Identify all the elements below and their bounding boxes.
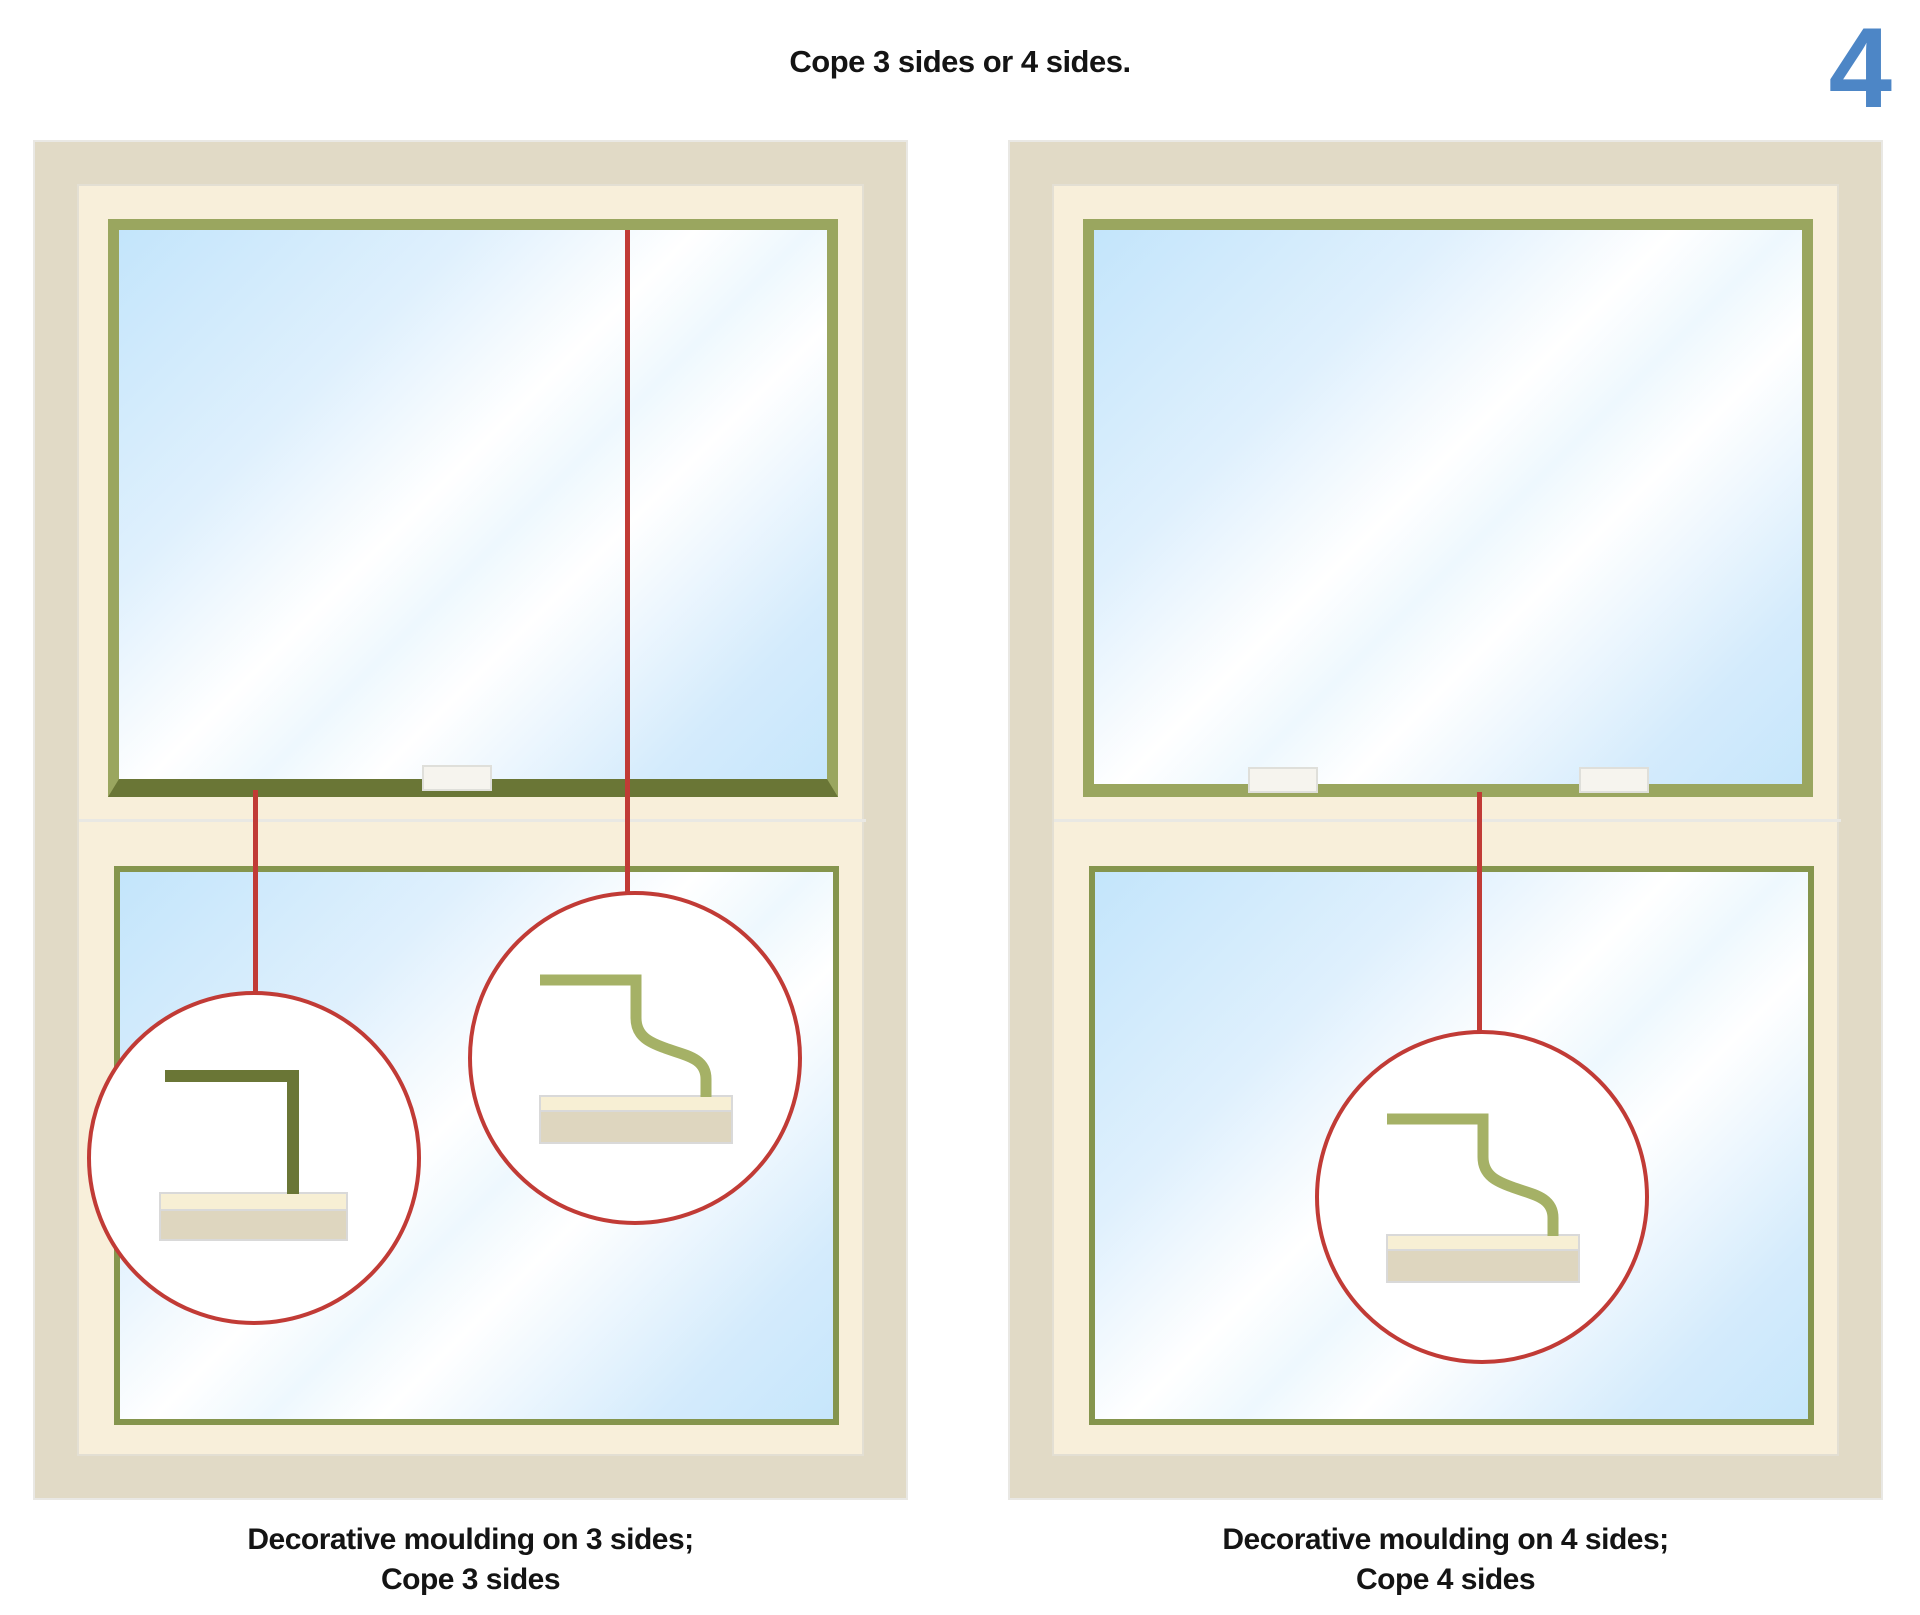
window-diagram-3-sides [33, 140, 908, 1500]
sill-top [540, 1096, 732, 1111]
frame-joint-line [79, 819, 866, 822]
square-moulding-profile-icon [87, 991, 421, 1325]
callout-leader-line [1477, 792, 1482, 1032]
frame-joint-line [1054, 819, 1841, 822]
figure-title: Cope 3 sides or 4 sides. [0, 44, 1920, 80]
ogee-moulding-line [1387, 1119, 1553, 1236]
window-diagram-4-sides [1008, 140, 1883, 1500]
callout-leader-line-top [625, 230, 630, 894]
ogee-moulding-line [540, 980, 706, 1097]
figure-canvas: Cope 3 sides or 4 sides. 4 Decorative mo [0, 0, 1920, 1615]
ogee-moulding-profile-icon [468, 891, 802, 1225]
ogee-moulding-profile-icon [1315, 1030, 1649, 1364]
caption-3-sides: Decorative moulding on 3 sides; Cope 3 s… [33, 1520, 908, 1600]
callout-circle-square-moulding [87, 991, 421, 1325]
caption-line-1: Decorative moulding on 4 sides; [1008, 1520, 1883, 1560]
sash-lift-tab [422, 765, 492, 791]
sill-top [160, 1193, 347, 1210]
square-moulding-line [165, 1076, 293, 1194]
caption-line-2: Cope 4 sides [1008, 1560, 1883, 1600]
step-number-badge: 4 [1829, 12, 1892, 126]
sill-top [1387, 1235, 1579, 1250]
sill-base [1387, 1250, 1579, 1282]
sash-lift-tab-right [1579, 767, 1649, 793]
caption-line-2: Cope 3 sides [33, 1560, 908, 1600]
upper-sash [108, 219, 838, 797]
sash-lift-tab-left [1248, 767, 1318, 793]
sill-base [160, 1210, 347, 1240]
callout-circle-ogee-moulding [468, 891, 802, 1225]
caption-line-1: Decorative moulding on 3 sides; [33, 1520, 908, 1560]
upper-sash [1083, 219, 1813, 797]
callout-leader-line-rail [253, 790, 258, 994]
caption-4-sides: Decorative moulding on 4 sides; Cope 4 s… [1008, 1520, 1883, 1600]
sill-base [540, 1111, 732, 1143]
callout-circle-ogee-moulding [1315, 1030, 1649, 1364]
